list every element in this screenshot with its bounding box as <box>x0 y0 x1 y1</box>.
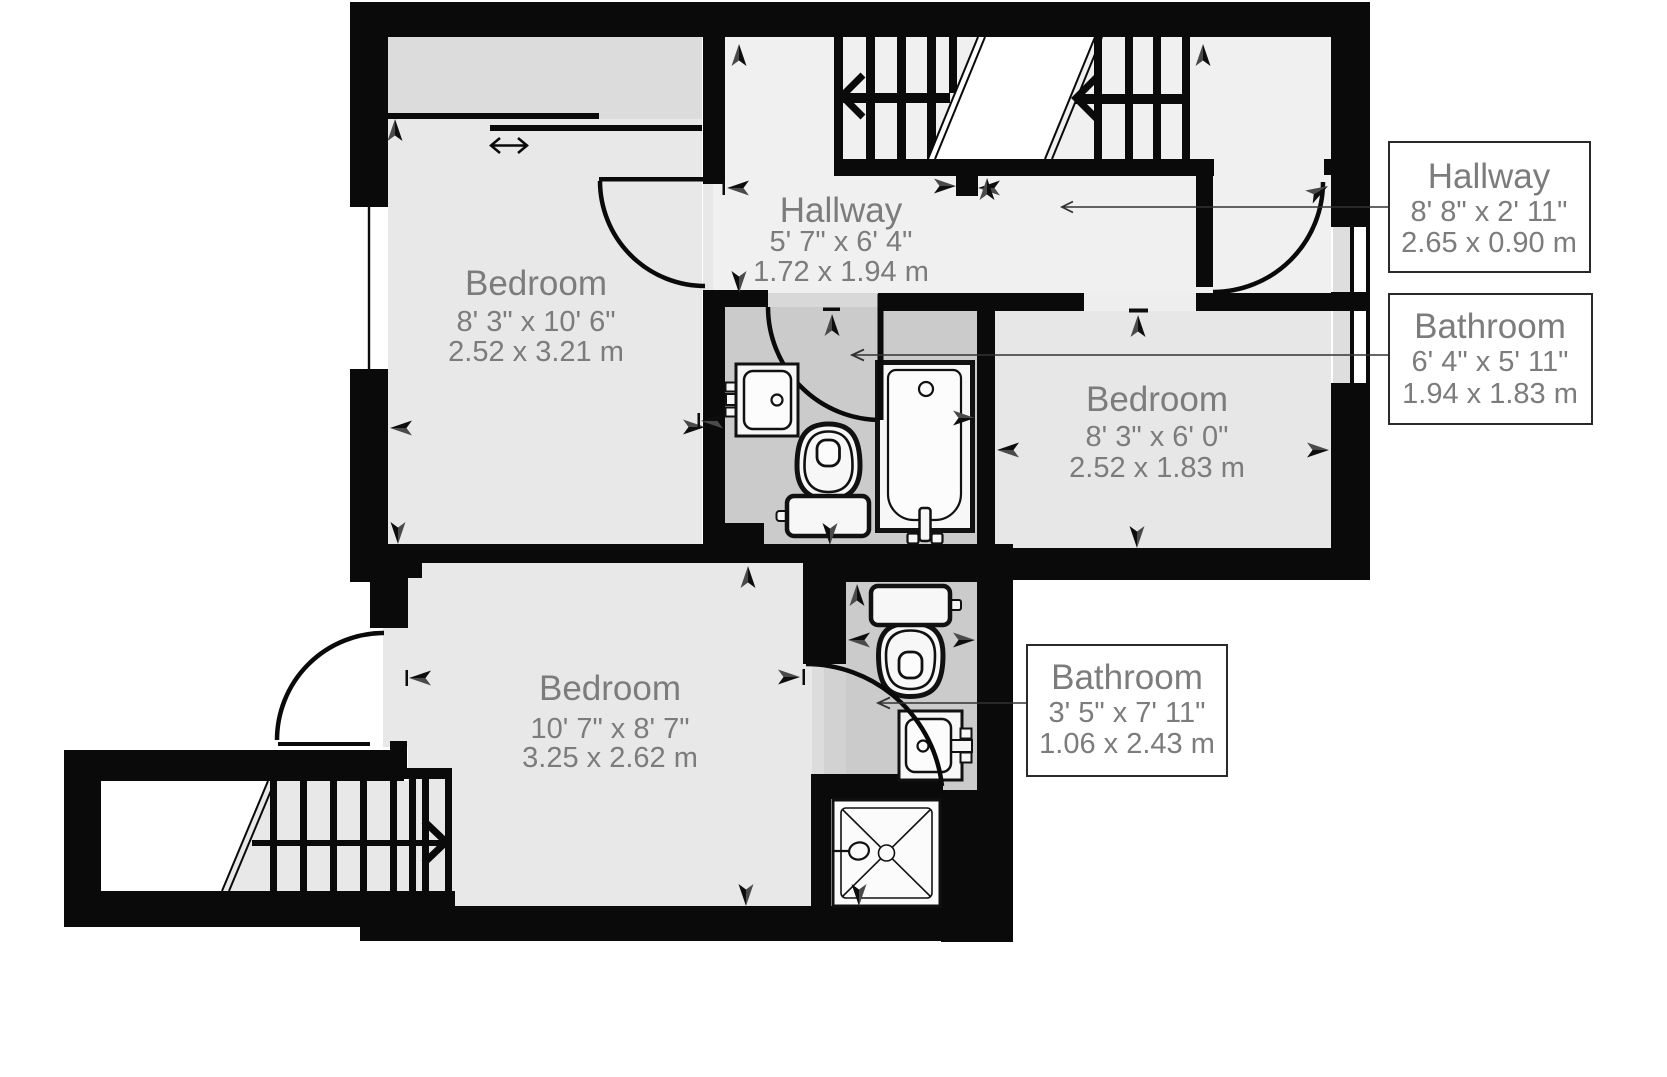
svg-text:Hallway: Hallway <box>780 191 903 230</box>
svg-text:Hallway: Hallway <box>1428 157 1551 196</box>
svg-text:8' 3" x 10' 6": 8' 3" x 10' 6" <box>456 306 615 338</box>
svg-text:Bedroom: Bedroom <box>1086 380 1228 419</box>
svg-text:1.72 x 1.94 m: 1.72 x 1.94 m <box>753 256 929 288</box>
svg-text:3' 5" x 7' 11": 3' 5" x 7' 11" <box>1049 697 1206 729</box>
svg-text:2.65 x 0.90 m: 2.65 x 0.90 m <box>1401 227 1577 259</box>
svg-text:5' 7" x 6' 4": 5' 7" x 6' 4" <box>770 226 913 258</box>
svg-text:Bedroom: Bedroom <box>465 264 607 303</box>
svg-text:3.25 x 2.62 m: 3.25 x 2.62 m <box>522 742 698 774</box>
svg-text:1.94 x 1.83 m: 1.94 x 1.83 m <box>1402 378 1578 410</box>
svg-text:Bedroom: Bedroom <box>539 669 681 708</box>
svg-text:6' 4" x 5' 11": 6' 4" x 5' 11" <box>1412 346 1569 378</box>
svg-text:1.06 x 2.43 m: 1.06 x 2.43 m <box>1039 728 1215 760</box>
svg-text:8' 8" x 2' 11": 8' 8" x 2' 11" <box>1411 196 1568 228</box>
svg-text:Bathroom: Bathroom <box>1051 658 1203 697</box>
svg-text:Bathroom: Bathroom <box>1414 307 1566 346</box>
svg-text:8' 3" x 6' 0": 8' 3" x 6' 0" <box>1086 421 1229 453</box>
svg-text:10' 7" x 8' 7": 10' 7" x 8' 7" <box>530 713 689 745</box>
svg-text:2.52 x 1.83 m: 2.52 x 1.83 m <box>1069 452 1245 484</box>
svg-text:2.52 x 3.21 m: 2.52 x 3.21 m <box>448 336 624 368</box>
